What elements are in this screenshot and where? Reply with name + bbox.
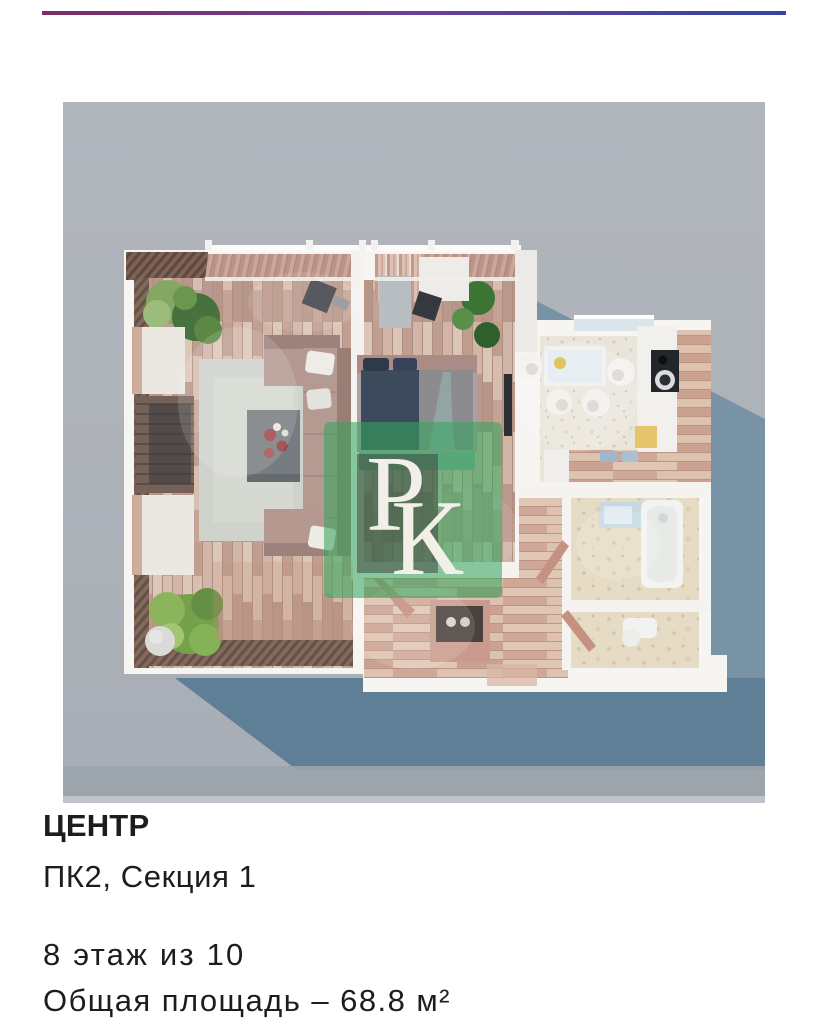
svg-text:К: К [391,479,464,598]
